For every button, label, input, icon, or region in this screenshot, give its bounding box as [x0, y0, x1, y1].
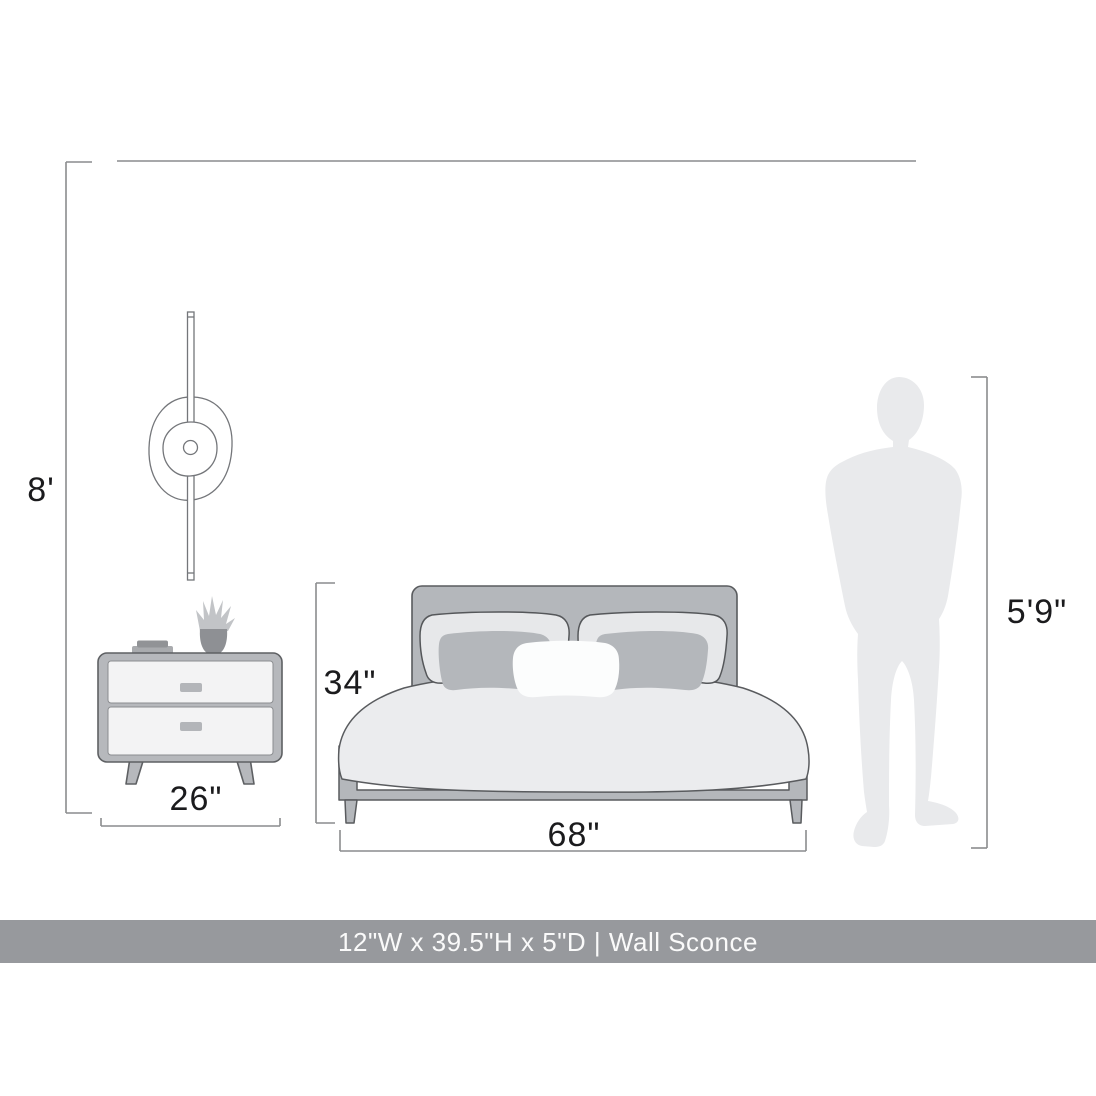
nightstand-illustration: [98, 596, 282, 784]
nightstand-width-dimension-line: [101, 818, 280, 826]
person-height-label: 5'9": [1007, 595, 1067, 629]
nightstand-drawer-top: [108, 661, 273, 703]
footer-product-label: 12"W x 39.5"H x 5"D | Wall Sconce: [338, 929, 758, 955]
person-silhouette: [825, 377, 961, 847]
bed-height-dimension-line: [316, 583, 335, 823]
bed-lumbar-pillow: [513, 641, 620, 698]
wall-sconce-illustration: [149, 312, 232, 580]
bed-width-label: 68": [548, 818, 601, 852]
wall-height-label: 8': [27, 473, 54, 507]
nightstand-decor-books: [132, 641, 173, 655]
person-height-dimension-line: [971, 377, 987, 848]
bed-height-label: 34": [324, 666, 377, 700]
nightstand-width-label: 26": [170, 782, 223, 816]
wall-height-dimension-line: [66, 162, 92, 813]
bed-leg-left: [345, 800, 357, 823]
nightstand-handle-bottom: [180, 722, 202, 731]
nightstand-decor-plant: [196, 596, 235, 655]
nightstand-handle-top: [180, 683, 202, 692]
dimension-diagram-page: 8' 26" 34" 68" 5'9" 12"W x 39.5"H x 5"D …: [0, 0, 1096, 1096]
footer-bar: 12"W x 39.5"H x 5"D | Wall Sconce: [0, 920, 1096, 963]
bed-illustration: [339, 586, 809, 823]
bed-leg-right: [790, 800, 802, 823]
